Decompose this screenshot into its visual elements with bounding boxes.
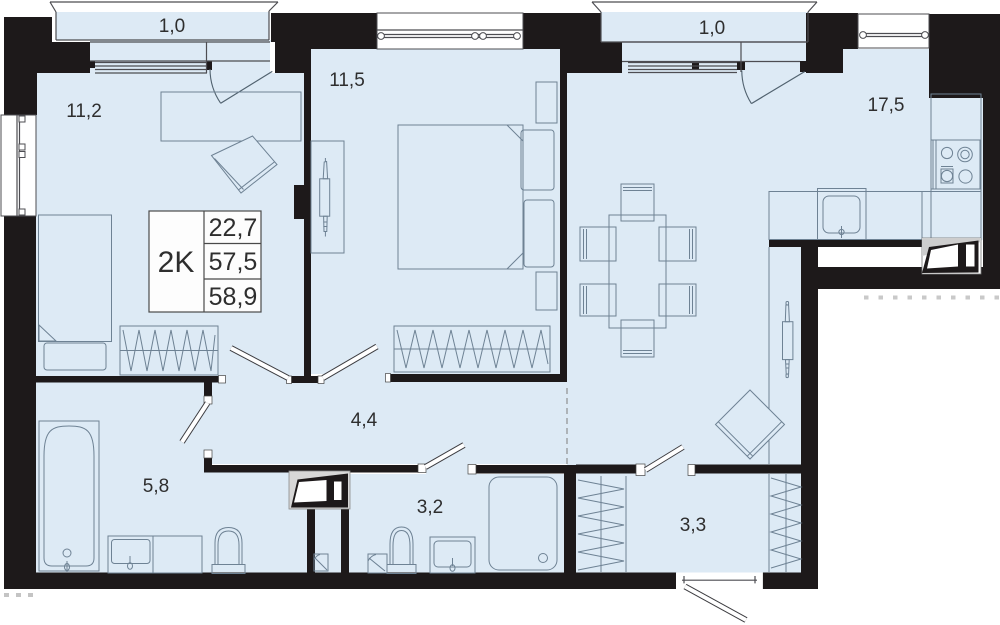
svg-text:22,7: 22,7: [209, 214, 258, 242]
svg-text:3,3: 3,3: [680, 515, 706, 536]
svg-text:17,5: 17,5: [868, 95, 905, 116]
svg-text:1,0: 1,0: [159, 16, 185, 37]
svg-text:2K: 2K: [158, 246, 195, 279]
svg-text:57,5: 57,5: [209, 248, 258, 276]
svg-text:4,4: 4,4: [351, 410, 378, 431]
svg-text:11,2: 11,2: [66, 101, 102, 122]
svg-text:3,2: 3,2: [417, 497, 443, 518]
svg-text:1,0: 1,0: [699, 18, 725, 39]
svg-text:58,9: 58,9: [209, 283, 258, 311]
svg-text:5,8: 5,8: [143, 476, 169, 497]
svg-text:11,5: 11,5: [329, 70, 365, 91]
